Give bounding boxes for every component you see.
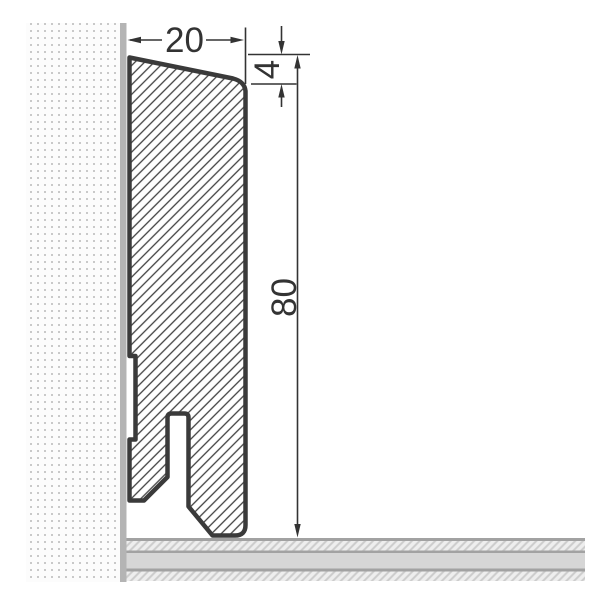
floor-upper-hatch-layer <box>127 541 586 551</box>
floor-lower-hatch-layer <box>127 572 586 582</box>
floor-top-line <box>127 538 586 541</box>
dimension-top-bevel: 4 <box>248 26 310 107</box>
arrow-down-icon <box>278 41 284 55</box>
arrow-right-icon <box>231 37 245 43</box>
dim-bevel-value: 4 <box>248 60 287 79</box>
technical-drawing-canvas: 20 4 80 <box>0 0 604 604</box>
dimension-height: 80 <box>265 55 304 538</box>
wall-section <box>26 23 127 582</box>
arrow-up-icon <box>294 55 300 69</box>
floor-section <box>127 538 586 581</box>
arrow-up-icon <box>278 84 284 98</box>
wall-surface-line <box>120 23 127 582</box>
skirting-profile-drawing: 20 4 80 <box>0 0 604 604</box>
skirting-profile <box>130 58 246 536</box>
dim-width-value: 20 <box>165 21 204 60</box>
floor-divider-line <box>127 551 586 554</box>
floor-solid-layer <box>127 553 586 569</box>
floor-divider-line-2 <box>127 569 586 572</box>
arrow-down-icon <box>294 524 300 538</box>
wall-stipple-texture <box>26 23 120 582</box>
arrow-left-icon <box>128 37 142 43</box>
dim-height-value: 80 <box>265 278 304 317</box>
